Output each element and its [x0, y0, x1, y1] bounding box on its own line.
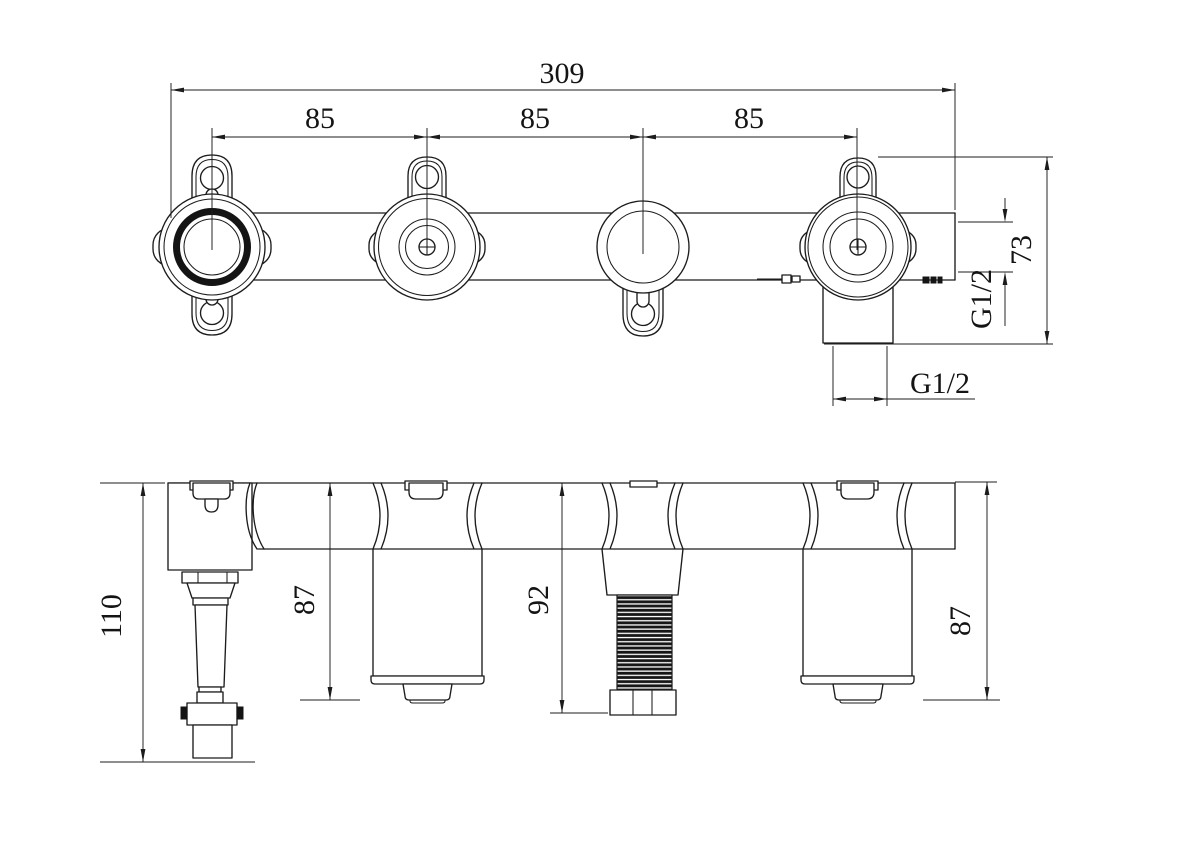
side-plug-left: [792, 276, 800, 282]
cartridge-housing: [803, 549, 912, 676]
side-port-right: [923, 277, 929, 283]
dim-label-stud-height: 92: [522, 585, 555, 615]
dim-label-side-port: G1/2: [965, 269, 998, 329]
inlet-body-front: [168, 481, 264, 758]
stud-body-front: [602, 481, 683, 715]
dim-label-total-height: 110: [95, 594, 128, 638]
dim-label-spacing-1: 85: [305, 102, 335, 135]
cartridge-right-front: [801, 481, 914, 703]
center-lines: [212, 128, 857, 254]
tab-hole: [847, 166, 869, 188]
hex-nut: [610, 690, 676, 715]
dim-stud-height: 92: [522, 483, 608, 713]
valve-body-4: [757, 158, 942, 343]
cartridge-housing: [373, 549, 482, 676]
threaded-stud: [617, 595, 672, 690]
compression-nut: [187, 703, 237, 725]
dim-label-right-cartridge: 87: [944, 606, 977, 636]
hex-nut: [182, 572, 238, 583]
pipe-end: [193, 725, 232, 758]
drawing-canvas: 309 85 85 85 73: [0, 0, 1200, 848]
pipe-flange: [187, 583, 235, 598]
dim-spacing: 85 85 85: [212, 102, 857, 139]
dim-right-cartridge-height: 87: [923, 482, 1000, 700]
cartridge-left-front: [371, 481, 484, 703]
dim-label-bottom-port: G1/2: [910, 367, 970, 400]
cartridge-stem: [403, 684, 452, 700]
clip-pin: [205, 499, 218, 512]
stud-block: [602, 549, 683, 595]
side-plug-left: [782, 275, 791, 283]
dim-left-cartridge-height: 87: [288, 483, 360, 700]
dim-label-overall-width: 309: [540, 57, 585, 90]
dim-overall-width: 309: [171, 57, 955, 218]
dim-label-spacing-2: 85: [520, 102, 550, 135]
side-port-right: [931, 277, 936, 283]
dim-label-left-cartridge: 87: [288, 585, 321, 615]
technical-drawing: 309 85 85 85 73: [0, 0, 1200, 848]
supply-pipe: [195, 605, 227, 687]
top-view: 309 85 85 85 73: [153, 57, 1053, 406]
retaining-clip: [630, 481, 657, 487]
dim-label-height: 73: [1005, 235, 1038, 265]
dim-label-spacing-3: 85: [734, 102, 764, 135]
dim-bottom-port: G1/2: [833, 346, 975, 406]
cartridge-stem: [833, 684, 883, 700]
front-view: 110 87 92 87: [95, 481, 1000, 762]
side-port-right: [938, 277, 942, 283]
